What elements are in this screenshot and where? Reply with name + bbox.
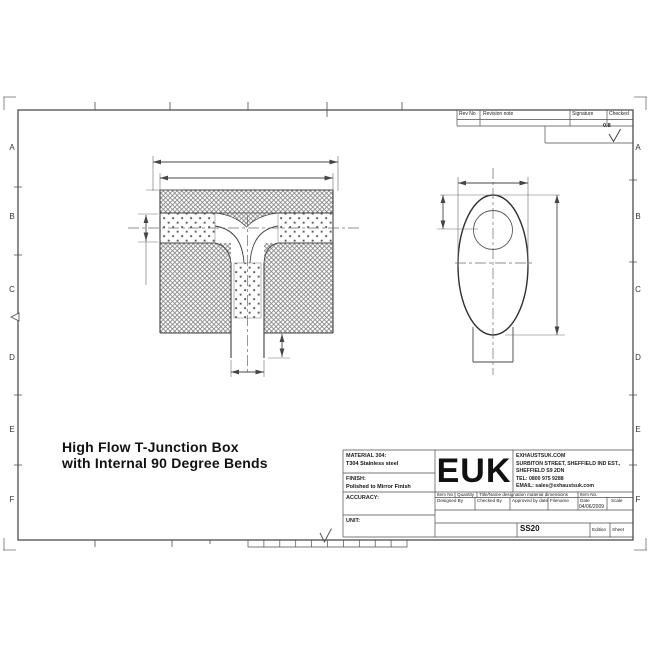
company-info-block: EXHAUSTSUK.COM SURBITON STREET, SHEFFIEL… [516,453,620,491]
finish-value: Polished to Mirror Finish [346,485,411,491]
zone-letter-right-f: F [633,496,643,504]
company-logo: EUK [435,454,513,488]
unit-label: UNIT: [346,519,360,525]
item-no2-header: Item No. [580,493,597,498]
drawing-number: SS20 [520,525,540,533]
material-value: T304 Stainless steel [346,462,398,468]
material-label: MATERIAL 304: [346,454,386,460]
zone-letter-left-e: E [7,426,17,434]
scale-header: Scale [611,499,623,504]
drawing-title-line2: with Internal 90 Degree Bends [62,456,268,471]
edition-label: Edition [592,528,606,533]
quantity-header: Quantity [457,493,474,498]
drawing-sheet: A B C D E F A B C D E F Rev No Revision … [0,0,650,650]
rev-no-header: Rev No [459,112,476,117]
zone-letter-right-a: A [633,144,643,152]
end-view-centerlines [455,168,533,375]
company-address1: SURBITON STREET, SHEFFIELD IND EST., [516,461,620,469]
accuracy-label: ACCURACY: [346,496,379,502]
designation-header: Title/Name designation material dimensio… [479,493,568,498]
date-header: Date [580,499,590,504]
zone-letter-right-b: B [633,213,643,221]
front-section-view [128,156,362,377]
checked-header: Checked [609,112,629,117]
zone-letter-left-c: C [7,286,17,294]
surface-finish-icon [609,129,621,142]
filename-header: Filename [550,499,569,504]
approved-by-header: Approved by date [512,499,548,504]
sheet-label: Sheet [612,528,624,533]
zone-letter-left-b: B [7,213,17,221]
zone-letter-right-c: C [633,286,643,294]
drawing-linework [0,0,650,650]
designed-by-header: Designed By [437,499,463,504]
checked-by-header: Checked By [477,499,502,504]
drawing-title-line1: High Flow T-Junction Box [62,440,239,455]
date-value: 04/06/2009 [579,505,604,510]
item-no-header: Item No [437,493,453,498]
end-view [437,168,565,375]
zone-letter-right-d: D [633,354,643,362]
company-website: EXHAUSTSUK.COM [516,453,620,461]
revision-note-header: Revision note [483,112,513,117]
surface-finish-value: 0.8 [603,124,611,130]
end-view-dimensions [437,177,565,335]
company-address2: SHEFFIELD S9 2DN [516,468,620,476]
left-center-mark-icon [11,313,19,321]
finish-label: FINISH: [346,477,366,483]
company-tel: TEL: 0800 975 9288 [516,476,620,484]
zone-letter-right-e: E [633,426,643,434]
company-email: EMAIL: sales@exhaustsuk.com [516,483,620,491]
signature-header: Signature [572,112,593,117]
zone-letter-left-f: F [7,496,17,504]
zone-letter-left-a: A [7,144,17,152]
metric-scale-bar [248,540,407,547]
zone-letter-left-d: D [7,354,17,362]
